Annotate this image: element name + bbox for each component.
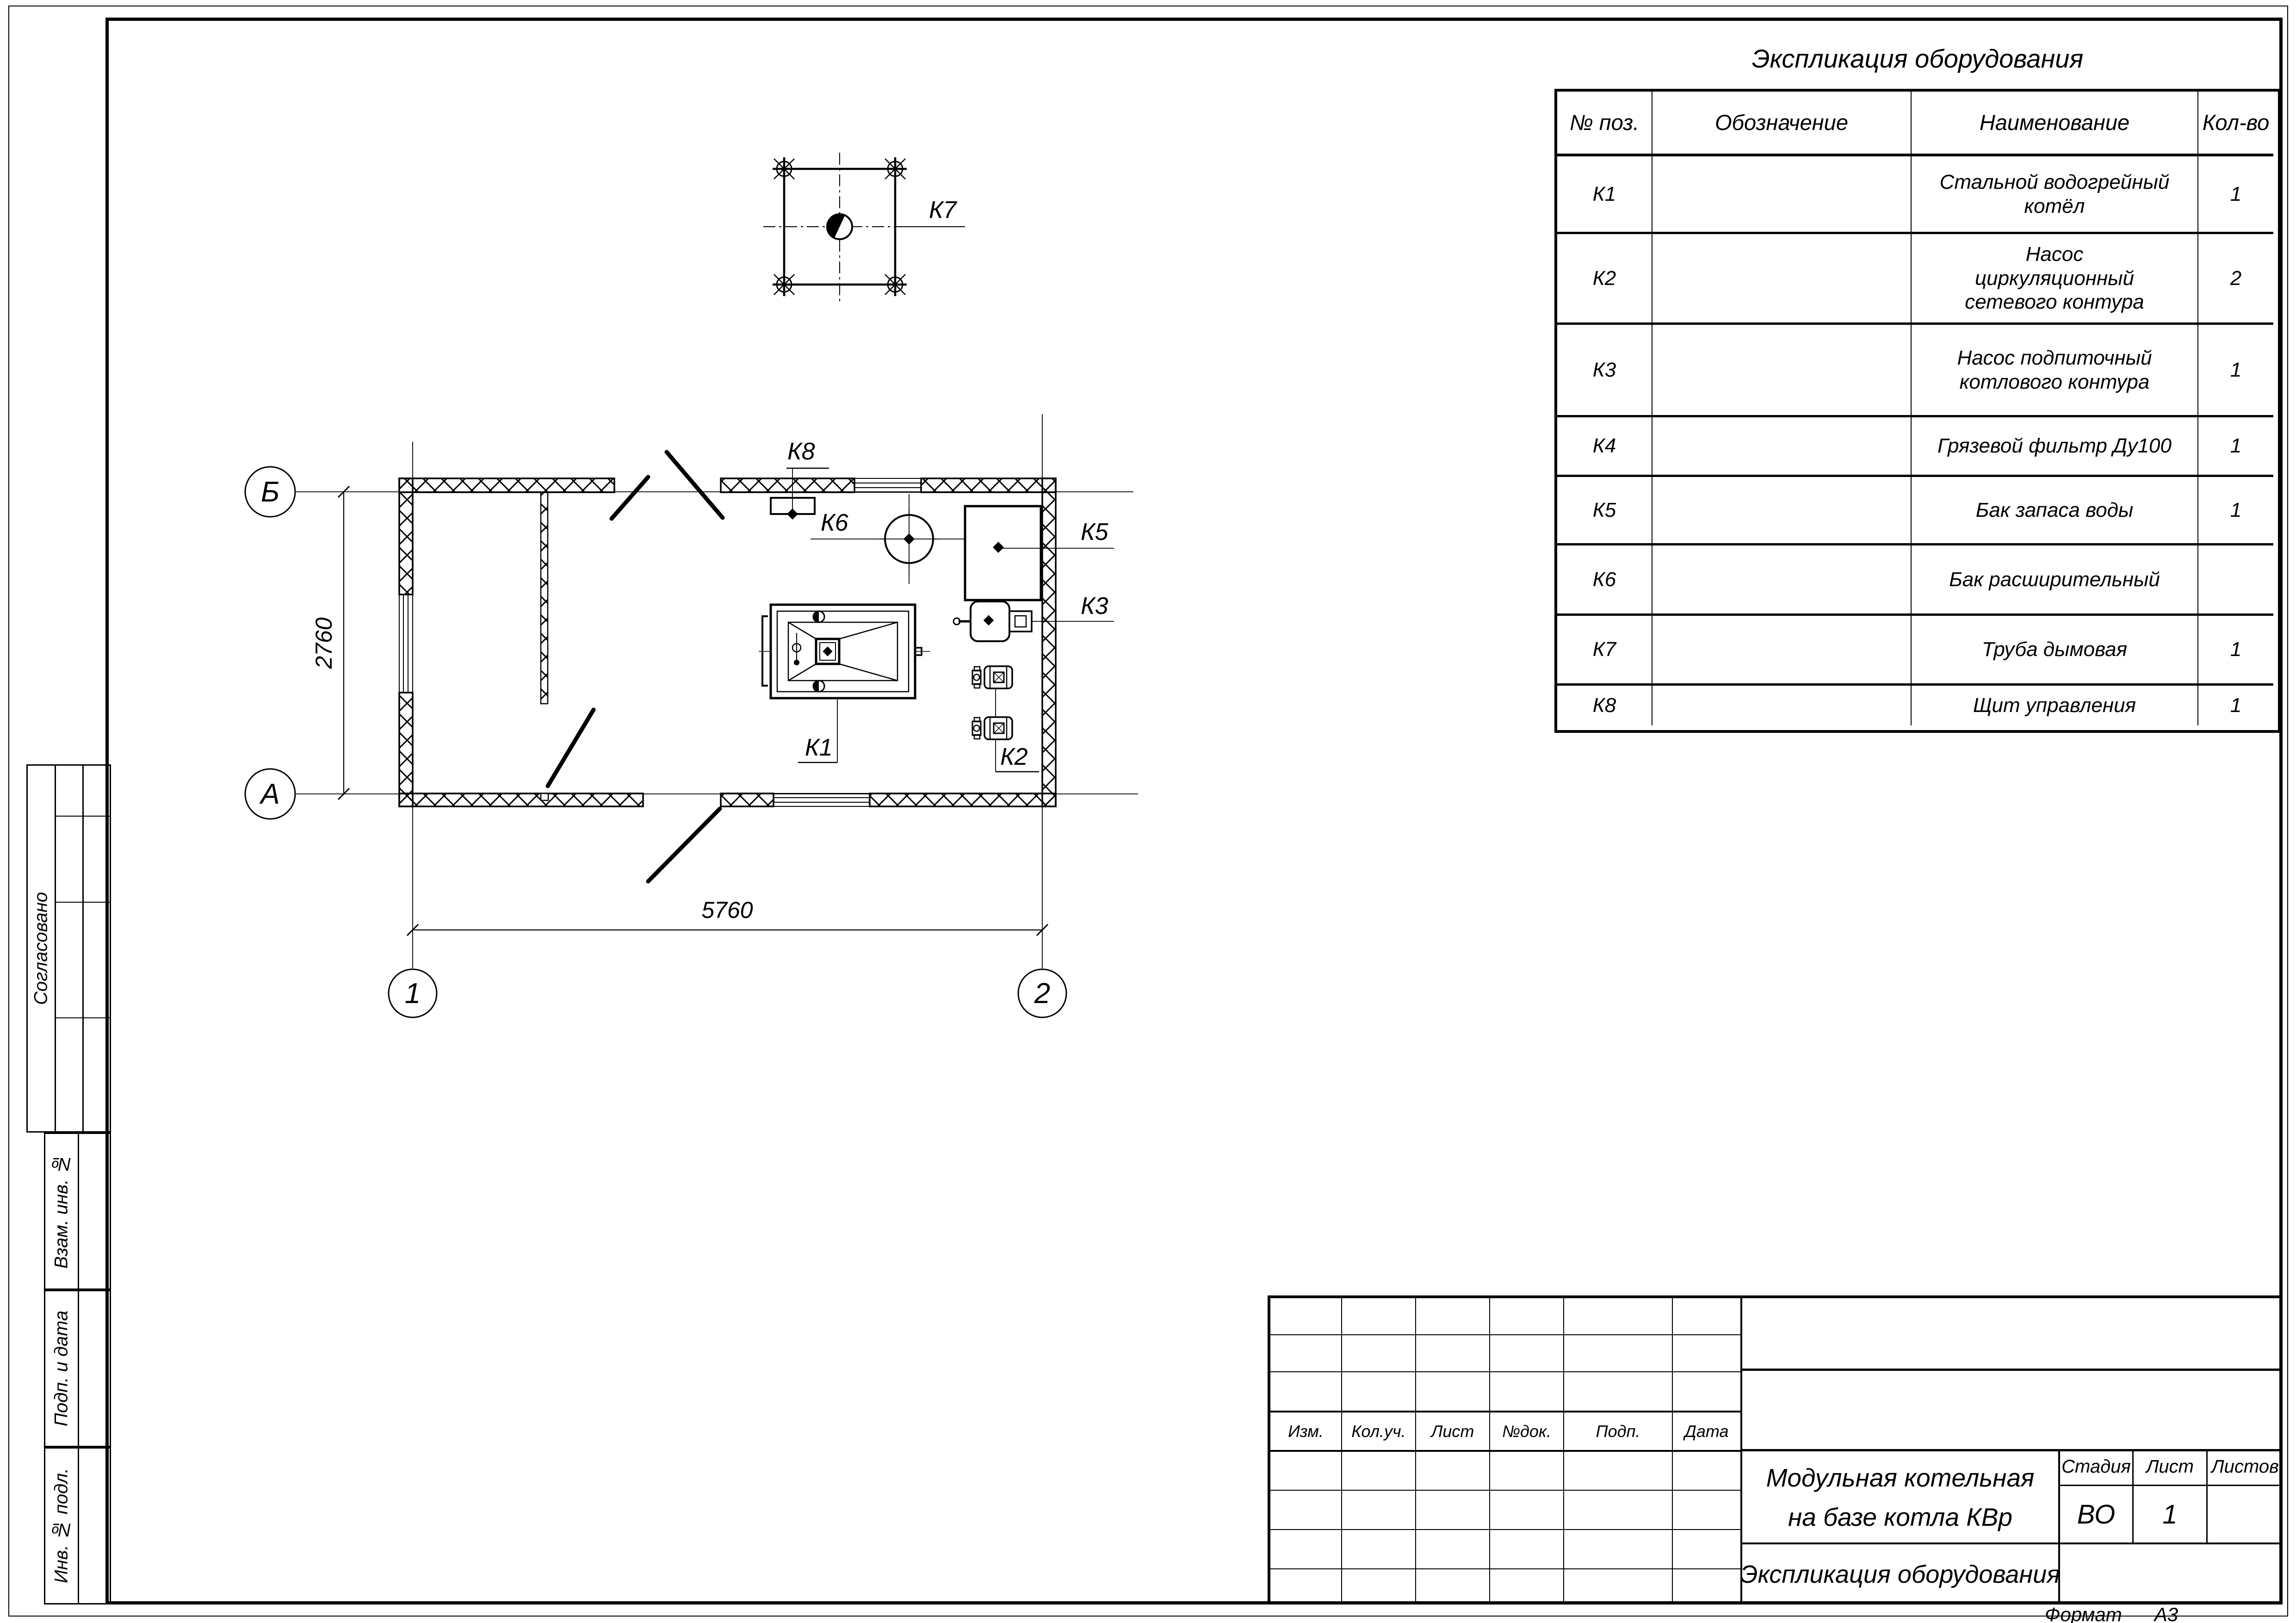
row-k5-pos: К5 (1557, 477, 1652, 545)
stamp-inv-orig: Инв. № подл. (44, 1447, 111, 1604)
format-value: А3 (2154, 1604, 2178, 1618)
dimension-lines (338, 486, 1048, 935)
row-k4-qty: 1 (2198, 417, 2273, 477)
stamp-approved: Согласовано (26, 764, 111, 1133)
col-header-name: Наименование (1912, 92, 2198, 156)
row-k2-qty: 2 (2198, 234, 2273, 325)
dim-height-label: 2760 (310, 601, 338, 685)
label-k6: К6 (821, 509, 848, 537)
format-label: Формат (2045, 1604, 2122, 1618)
row-k5-qty: 1 (2198, 477, 2273, 545)
row-k3-pos: К3 (1557, 325, 1652, 417)
row-k2-designation (1652, 234, 1912, 325)
stamp-approved-label: Согласовано (28, 766, 55, 1131)
axis-lines (296, 414, 1138, 968)
axis-label-1: 1 (385, 977, 440, 1010)
stage-label: Стадия (2060, 1449, 2132, 1485)
tank-k6-symbol (811, 494, 966, 584)
row-k2-pos: К2 (1557, 234, 1652, 325)
stamp-inv-orig-label: Инв. № подл. (45, 1449, 78, 1603)
door-jamb (541, 793, 548, 800)
row-k1-qty: 1 (2198, 156, 2273, 234)
title-block: Изм. Кол.уч. Лист №док. Подп. Дата Модул… (1268, 1295, 2283, 1604)
label-k3: К3 (1081, 592, 1108, 620)
project-title-line1: Модульная котельная (1742, 1458, 2058, 1497)
row-k4-designation (1652, 417, 1912, 477)
row-k4-name: Грязевой фильтр Ду100 (1912, 417, 2198, 477)
row-k8-name: Щит управления (1912, 686, 2198, 725)
stamp-sign-date: Подп. и дата (44, 1290, 111, 1447)
sheets-label: Листов (2208, 1449, 2283, 1485)
stamp-replace-inv: Взам. инв. № (44, 1133, 111, 1290)
project-title-line2: на базе котла КВр (1742, 1497, 2058, 1536)
row-k7-name: Труба дымовая (1912, 616, 2198, 686)
dim-width-label: 5760 (690, 897, 764, 923)
door-leaves (548, 452, 723, 881)
row-k3-designation (1652, 325, 1912, 417)
row-k1-name: Стальной водогрейный котёл (1912, 156, 2198, 234)
format-note: Формат А3 (2045, 1604, 2258, 1618)
row-k7-qty: 1 (2198, 616, 2273, 686)
axis-label-2: 2 (1015, 977, 1070, 1010)
row-k8-qty: 1 (2198, 686, 2273, 725)
rev-col-data: Дата (1673, 1412, 1740, 1450)
rev-col-koluch: Кол.уч. (1342, 1412, 1415, 1450)
row-k8-pos: К8 (1557, 686, 1652, 725)
row-k5-designation (1652, 477, 1912, 545)
doc-title: Экспликация оборудования (1742, 1544, 2058, 1604)
boiler-k1-symbol (759, 605, 930, 762)
row-k4-pos: К4 (1557, 417, 1652, 477)
col-header-pos: № поз. (1557, 92, 1652, 156)
row-k6-name: Бак расширительный (1912, 545, 2198, 616)
sheet-label: Лист (2134, 1449, 2206, 1485)
row-k3-name: Насос подпиточный котлового контура (1912, 325, 2198, 417)
stamp-sign-date-label: Подп. и дата (45, 1291, 78, 1446)
stage-value: ВО (2060, 1486, 2132, 1542)
rev-col-podp: Подп. (1564, 1412, 1672, 1450)
label-k8: К8 (787, 438, 815, 465)
row-k1-designation (1652, 156, 1912, 234)
sheet-value: 1 (2134, 1486, 2206, 1542)
sheets-value (2208, 1486, 2283, 1542)
row-k6-qty (2198, 545, 2273, 616)
row-k7-designation (1652, 616, 1912, 686)
row-k8-designation (1652, 686, 1912, 725)
rev-col-izm: Изм. (1270, 1412, 1341, 1450)
row-k6-designation (1652, 545, 1912, 616)
row-k7-pos: К7 (1557, 616, 1652, 686)
axis-label-a: А (242, 778, 298, 810)
chimney-k7-detail (763, 153, 965, 303)
label-k7: К7 (929, 196, 957, 224)
label-k2: К2 (1000, 743, 1028, 771)
row-k3-qty: 1 (2198, 325, 2273, 417)
col-header-designation: Обозначение (1652, 92, 1912, 156)
row-k6-pos: К6 (1557, 545, 1652, 616)
row-k2-name: Насос циркуляционный сетевого контура (1912, 234, 2198, 325)
axis-label-b: Б (242, 476, 298, 508)
row-k1-pos: К1 (1557, 156, 1652, 234)
label-k1: К1 (805, 734, 833, 762)
rev-col-ndok: №док. (1490, 1412, 1563, 1450)
label-k5: К5 (1081, 518, 1108, 546)
stamp-replace-inv-label: Взам. инв. № (45, 1134, 78, 1288)
walls (399, 478, 1056, 806)
axis-bubbles (245, 467, 1066, 1017)
col-header-qty: Кол-во (2198, 92, 2273, 156)
row-k5-name: Бак запаса воды (1912, 477, 2198, 545)
equipment-table: № поз. Обозначение Наименование Кол-во К… (1554, 89, 2281, 733)
rev-col-list: Лист (1416, 1412, 1489, 1450)
equipment-table-title: Экспликация оборудования (1554, 44, 2281, 72)
